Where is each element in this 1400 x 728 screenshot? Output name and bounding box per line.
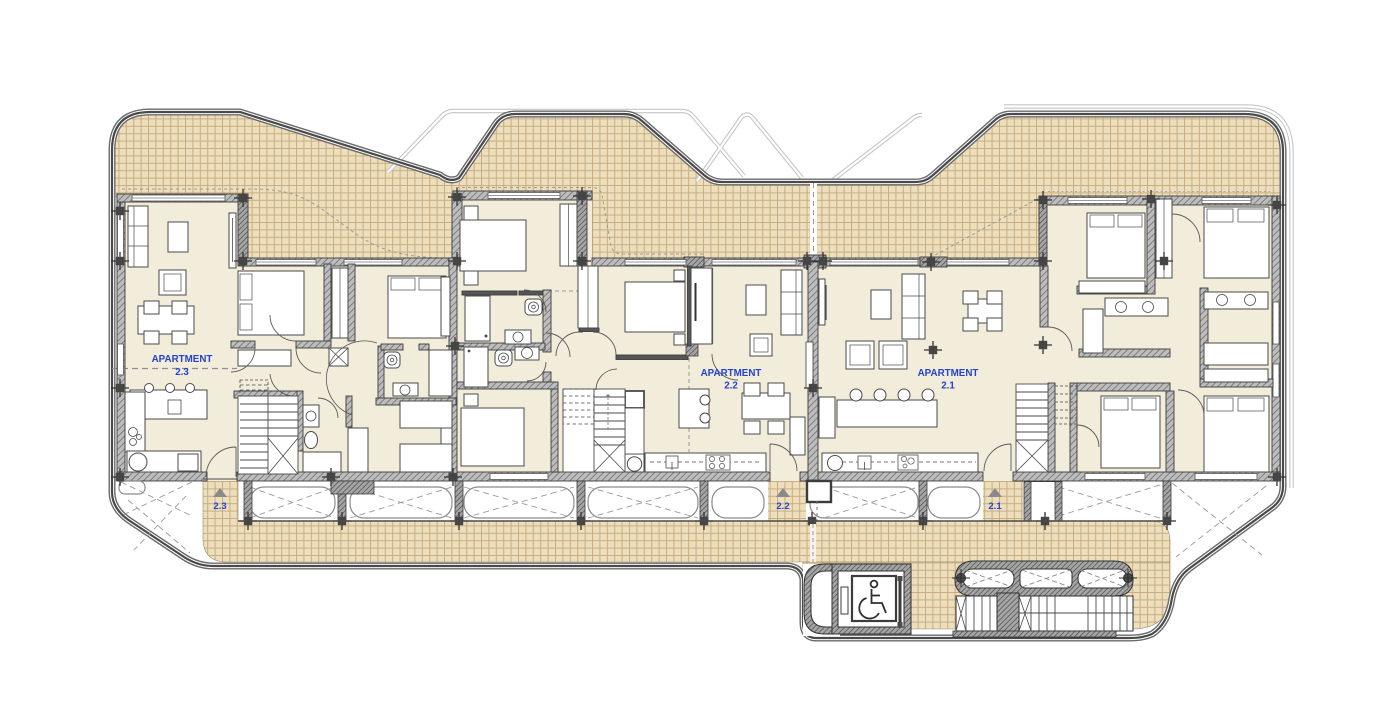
- svg-text:APARTMENT: APARTMENT: [701, 368, 762, 379]
- svg-text:APARTMENT: APARTMENT: [918, 368, 979, 379]
- svg-text:2.1: 2.1: [988, 501, 1002, 512]
- svg-text:2.2: 2.2: [776, 501, 789, 512]
- svg-text:2.1: 2.1: [941, 381, 955, 392]
- svg-text:2.3: 2.3: [175, 367, 189, 378]
- svg-text:2.2: 2.2: [724, 381, 738, 392]
- svg-text:APARTMENT: APARTMENT: [152, 354, 213, 365]
- svg-text:2.3: 2.3: [213, 501, 226, 512]
